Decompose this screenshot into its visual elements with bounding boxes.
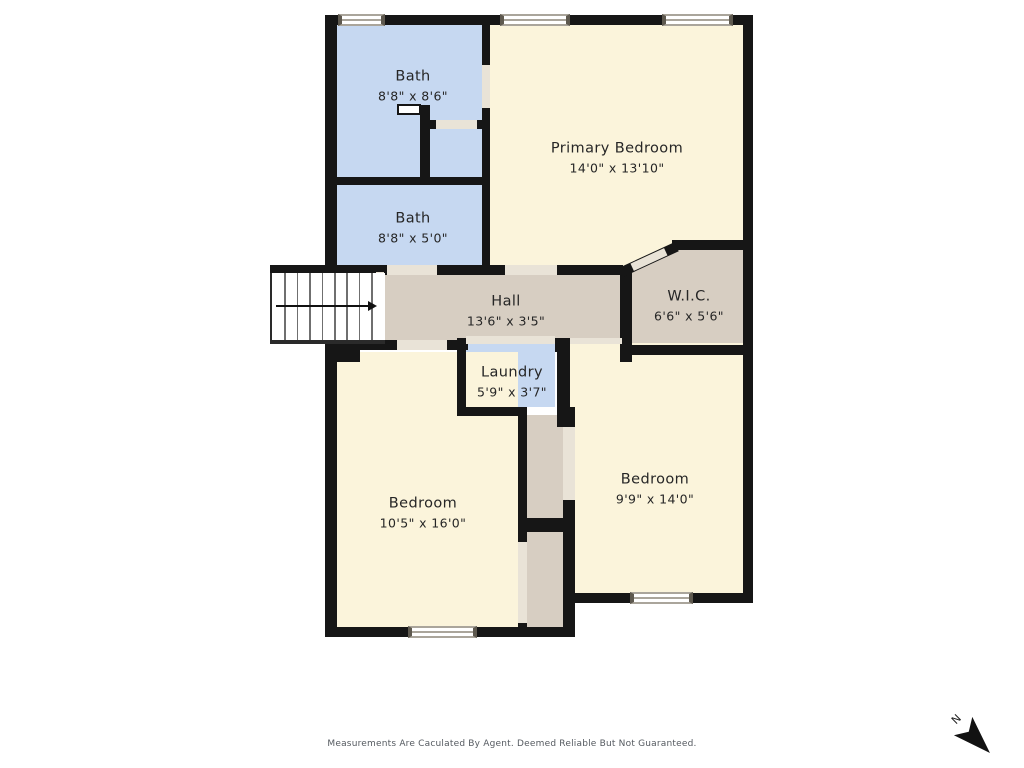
stair-tread: [346, 273, 348, 340]
door-opening: [505, 265, 557, 275]
door-opening: [436, 120, 477, 129]
window: [338, 14, 385, 26]
wall: [743, 15, 753, 603]
stair-tread: [334, 273, 336, 340]
wall: [482, 23, 490, 272]
window: [630, 592, 693, 604]
window: [662, 14, 733, 26]
north-indicator: N: [938, 698, 1008, 768]
wall: [518, 623, 527, 637]
door-opening: [466, 336, 555, 344]
wall: [563, 407, 575, 427]
stair-tread: [322, 273, 324, 340]
stair-tread: [284, 273, 286, 340]
wall: [672, 240, 753, 250]
door-opening: [482, 65, 490, 108]
floor-plan-canvas: Bath8'8" x 8'6"Bath8'8" x 5'0"Primary Be…: [0, 0, 1024, 768]
bath-door-leaf: [397, 104, 421, 115]
stair-tread: [297, 273, 299, 340]
disclaimer-text: Measurements Are Caculated By Agent. Dee…: [0, 739, 1024, 749]
room-bedroom-left-floor: [337, 352, 518, 627]
wall: [457, 407, 527, 416]
door-opening: [518, 542, 527, 623]
stair-tread: [309, 273, 311, 340]
wall: [620, 345, 753, 355]
door-opening: [570, 338, 622, 344]
wall: [325, 15, 337, 272]
door-opening: [397, 340, 447, 350]
stair-direction-arrow-icon: [368, 301, 377, 311]
room-primary-bedroom-floor: [490, 23, 753, 273]
window: [408, 626, 477, 638]
stair-direction-line: [276, 305, 368, 307]
room-hall-floor: [383, 272, 623, 340]
wall: [518, 518, 575, 532]
stair-tread: [359, 273, 361, 340]
room-bedroom-right-floor: [570, 343, 743, 593]
wall: [325, 177, 490, 185]
wall: [325, 340, 337, 637]
window: [500, 14, 570, 26]
north-label: N: [948, 711, 963, 726]
staircase: [270, 273, 385, 344]
wall: [420, 105, 430, 179]
door-opening: [387, 265, 437, 275]
wall: [457, 338, 466, 415]
room-bath-lower-floor: [333, 185, 490, 270]
room-bath-upper-floor: [333, 23, 490, 177]
door-opening: [563, 427, 575, 500]
